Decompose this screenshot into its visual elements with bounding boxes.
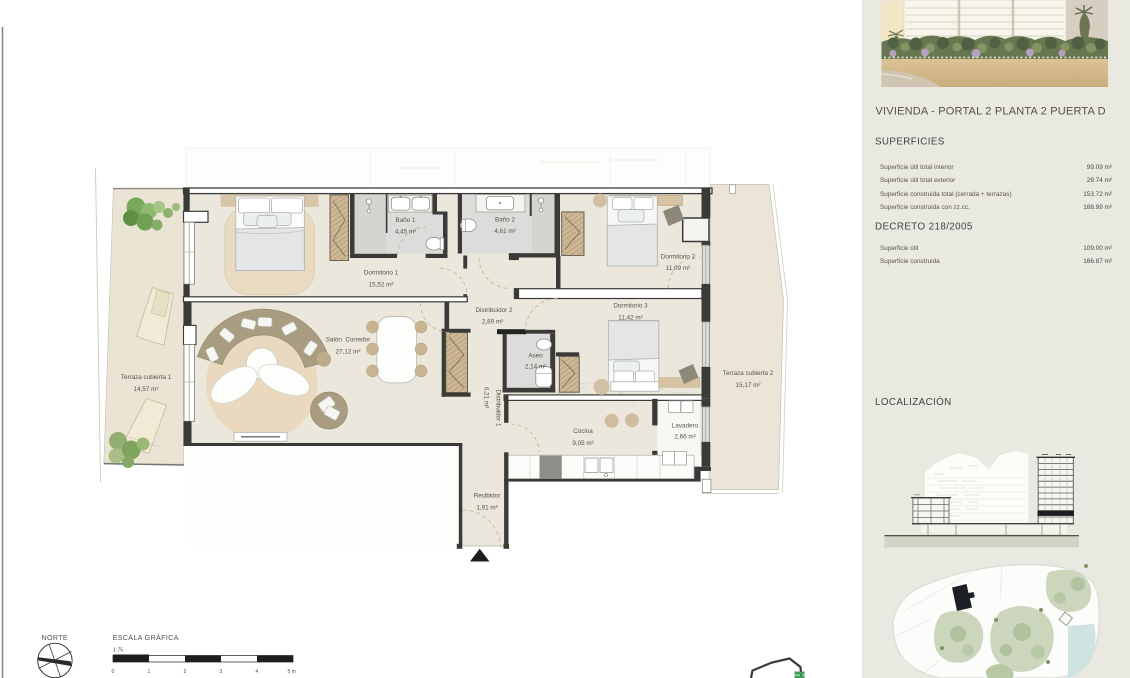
svg-text:2,89 m²: 2,89 m² (482, 319, 503, 326)
svg-text:3: 3 (220, 669, 223, 675)
svg-text:188.99 m²: 188.99 m² (1083, 204, 1112, 211)
svg-text:29.74 m²: 29.74 m² (1087, 177, 1112, 184)
svg-text:Lavadero: Lavadero (672, 423, 699, 430)
svg-text:Superficie útil total interior: Superficie útil total interior (880, 164, 954, 171)
svg-text:4: 4 (256, 669, 259, 675)
svg-text:Cocina: Cocina (573, 428, 593, 435)
svg-text:Distribuidor 1: Distribuidor 1 (495, 389, 502, 427)
svg-text:ESCALA GRÁFICA: ESCALA GRÁFICA (113, 633, 179, 642)
svg-text:NORTE: NORTE (42, 633, 69, 642)
svg-text:6,21 m²: 6,21 m² (483, 387, 490, 408)
svg-text:14,57 m²: 14,57 m² (134, 386, 159, 393)
svg-text:2,14 m²: 2,14 m² (525, 364, 546, 371)
svg-text:Distribuidor 2: Distribuidor 2 (475, 307, 513, 314)
svg-text:Terraza cubierta 2: Terraza cubierta 2 (723, 370, 774, 377)
svg-text:1: 1 (148, 669, 151, 675)
svg-text:SUPERFICIES: SUPERFICIES (875, 137, 945, 148)
svg-text:Superficie construida con zz.c: Superficie construida con zz.cc. (880, 204, 970, 211)
svg-text:0: 0 (112, 669, 115, 675)
svg-text:2,66 m²: 2,66 m² (674, 434, 695, 441)
svg-text:DECRETO 218/2005: DECRETO 218/2005 (875, 222, 973, 233)
svg-text:Dormitorio 3: Dormitorio 3 (613, 303, 648, 310)
svg-text:2: 2 (184, 669, 187, 675)
svg-text:153.72 m²: 153.72 m² (1083, 191, 1112, 198)
svg-text:99.09 m²: 99.09 m² (1087, 164, 1112, 171)
svg-text:1,91 m²: 1,91 m² (476, 505, 497, 512)
svg-text:Dormitorio 1: Dormitorio 1 (364, 270, 399, 277)
svg-text:Aseo: Aseo (528, 353, 543, 360)
svg-text:Recibidor: Recibidor (474, 493, 501, 500)
svg-text:Baño 1: Baño 1 (396, 217, 416, 224)
svg-text:11,42 m²: 11,42 m² (618, 315, 642, 322)
svg-text:VIVIENDA - PORTAL 2 PLANTA 2: VIVIENDA - PORTAL 2 PLANTA 2 PUERTA D (876, 106, 1106, 118)
svg-text:109.00 m²: 109.00 m² (1083, 245, 1112, 252)
svg-text:9,05 m²: 9,05 m² (572, 440, 593, 447)
svg-text:4,45 m²: 4,45 m² (395, 229, 416, 236)
svg-text:5 m: 5 m (288, 669, 296, 675)
svg-text:1:75: 1:75 (113, 648, 123, 654)
svg-text:Superficie útil: Superficie útil (880, 245, 918, 252)
svg-text:4,61 m²: 4,61 m² (494, 228, 515, 235)
svg-text:11,09 m²: 11,09 m² (666, 265, 690, 272)
svg-text:LOCALIZACIÓN: LOCALIZACIÓN (875, 397, 952, 408)
svg-text:Dormitorio 2: Dormitorio 2 (661, 254, 696, 261)
svg-text:166.87 m²: 166.87 m² (1083, 258, 1112, 265)
svg-text:15,17 m²: 15,17 m² (736, 382, 761, 389)
svg-text:Salón Corredor: Salón Corredor (326, 337, 370, 344)
svg-text:Terraza cubierta 1: Terraza cubierta 1 (121, 374, 172, 381)
svg-text:Superficie construida: Superficie construida (880, 258, 940, 265)
svg-text:Baño 2: Baño 2 (495, 217, 515, 224)
svg-text:Superficie útil total exterior: Superficie útil total exterior (880, 177, 956, 184)
svg-text:27,12 m²: 27,12 m² (336, 349, 361, 356)
svg-text:15,52 m²: 15,52 m² (369, 282, 394, 289)
svg-text:Superficie construida total (c: Superficie construida total (cerrada + t… (880, 191, 1012, 198)
